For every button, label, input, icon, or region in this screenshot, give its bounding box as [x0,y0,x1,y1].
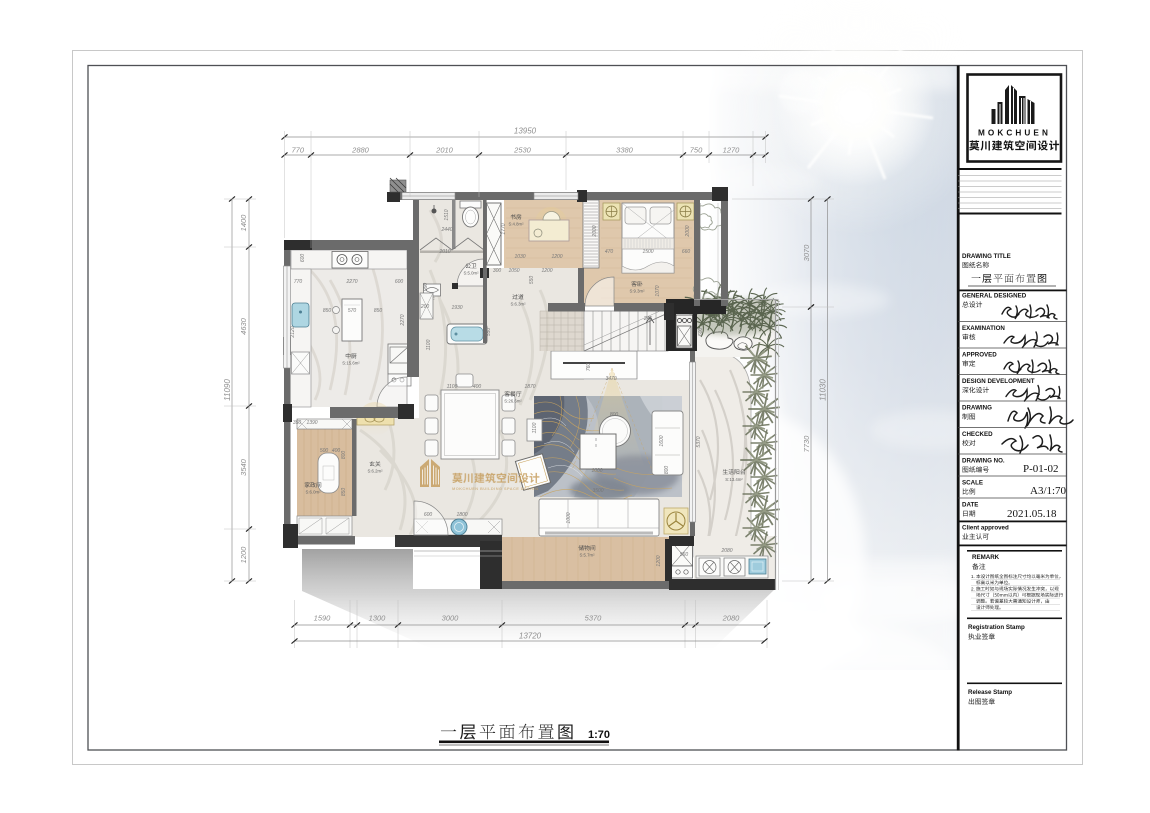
svg-text:S:4.8m²: S:4.8m² [508,222,524,227]
svg-text:S:6.0m²: S:6.0m² [305,490,321,495]
svg-text:S:15.6m²: S:15.6m² [342,361,360,366]
svg-text:600: 600 [300,254,306,263]
svg-text:1770: 1770 [501,223,507,234]
svg-text:1800: 1800 [456,512,467,518]
svg-text:600: 600 [395,279,404,285]
svg-text:S:6.3m²: S:6.3m² [510,302,526,307]
svg-text:S:5.7m²: S:5.7m² [579,553,595,558]
svg-text:600: 600 [424,512,433,518]
svg-text:S:9.3m²: S:9.3m² [629,289,645,294]
svg-text:11090: 11090 [223,379,232,401]
svg-text:1500: 1500 [642,249,653,255]
svg-text:P-01-02: P-01-02 [1023,463,1058,475]
svg-text:1270: 1270 [723,146,741,155]
svg-text:DATE: DATE [962,502,978,509]
svg-text:1070: 1070 [655,285,661,296]
svg-text:2080: 2080 [722,614,741,623]
svg-text:550: 550 [486,328,492,337]
svg-text:850: 850 [374,308,383,314]
svg-text:2120: 2120 [290,326,296,338]
svg-text:Client approved: Client approved [962,525,1009,532]
svg-text:Registration Stamp: Registration Stamp [968,624,1025,631]
svg-text:2440: 2440 [440,227,452,233]
svg-text:2000: 2000 [592,225,598,237]
svg-text:2270: 2270 [400,314,406,326]
svg-text:DRAWING NO.: DRAWING NO. [962,458,1005,465]
svg-text:500: 500 [320,448,329,454]
svg-text:CHECKED: CHECKED [962,431,993,438]
svg-text:1510: 1510 [444,209,450,220]
svg-text:400: 400 [332,448,341,454]
svg-text:DRAWING: DRAWING [962,405,992,412]
svg-text:800: 800 [664,466,670,475]
svg-text:MOKCHUEN: MOKCHUEN [978,129,1051,138]
svg-text:470: 470 [605,249,614,255]
svg-text:3380: 3380 [616,146,634,155]
svg-text:850: 850 [341,488,347,497]
svg-text:2530: 2530 [513,146,532,155]
svg-text:SCALE: SCALE [962,480,983,487]
svg-text:3000: 3000 [442,614,460,623]
svg-text:13950: 13950 [514,127,537,136]
svg-text:2010: 2010 [435,146,454,155]
svg-text:APPROVED: APPROVED [962,352,997,359]
svg-text:1050: 1050 [508,268,519,274]
svg-text:600: 600 [698,328,704,337]
svg-text:1200: 1200 [551,254,562,260]
svg-text:Release Stamp: Release Stamp [968,689,1012,696]
svg-text:2080: 2080 [720,548,732,554]
svg-text:11030: 11030 [818,379,827,401]
svg-text:245: 245 [643,316,653,322]
svg-text:750: 750 [690,146,703,155]
svg-text:S:5.0m²: S:5.0m² [463,271,479,276]
svg-text:1300: 1300 [369,614,387,623]
svg-text:REMARK: REMARK [972,554,1000,561]
svg-text:1390: 1390 [306,420,317,426]
svg-text:S:26.6m²: S:26.6m² [504,399,522,404]
svg-text:1100: 1100 [447,384,458,390]
svg-text:2010: 2010 [438,249,450,255]
svg-text:1100: 1100 [532,422,538,433]
svg-text:550: 550 [529,276,535,285]
svg-text:3070: 3070 [802,244,811,262]
svg-text:DRAWING TITLE: DRAWING TITLE [962,253,1011,260]
svg-text:1200: 1200 [239,546,248,564]
svg-text:3500: 3500 [592,488,603,494]
svg-text:2000: 2000 [685,225,691,237]
svg-text:DESIGN DEVELOPMENT: DESIGN DEVELOPMENT [962,378,1035,385]
svg-text:5370: 5370 [585,614,603,623]
svg-text:350: 350 [293,420,302,426]
svg-text:2270: 2270 [345,279,357,285]
svg-text:800: 800 [341,451,347,460]
svg-text:990: 990 [423,283,429,292]
svg-text:S:6.2m²: S:6.2m² [367,469,383,474]
svg-text:1030: 1030 [514,254,525,260]
svg-text:A3/1:70: A3/1:70 [1030,485,1067,497]
svg-text:1000: 1000 [566,512,572,523]
svg-text:MOKCHUEN BUILDING SPACE DESIGN: MOKCHUEN BUILDING SPACE DESIGN [452,486,539,491]
svg-text:1200: 1200 [656,555,662,566]
svg-text:7730: 7730 [802,435,811,453]
svg-text:EXAMINATION: EXAMINATION [962,325,1005,332]
svg-text:2880: 2880 [351,146,370,155]
svg-text:1000: 1000 [591,468,602,474]
svg-text:850: 850 [323,308,332,314]
svg-text:1:70: 1:70 [588,729,610,741]
svg-text:2021.05.18: 2021.05.18 [1007,508,1057,520]
svg-text:4630: 4630 [239,317,248,335]
svg-text:1100: 1100 [426,339,432,350]
svg-text:800: 800 [610,412,619,418]
svg-text:1590: 1590 [314,614,332,623]
svg-text:13720: 13720 [519,632,542,641]
svg-text:300: 300 [493,268,502,274]
svg-text:1930: 1930 [451,305,462,311]
svg-text:660: 660 [682,249,691,255]
svg-text:3540: 3540 [239,458,248,476]
svg-text:1870: 1870 [524,384,535,390]
svg-text:770: 770 [291,146,304,155]
svg-text:1400: 1400 [239,214,248,232]
svg-text:1600: 1600 [659,435,665,446]
svg-text:3470: 3470 [605,376,616,382]
svg-text:770: 770 [294,279,303,285]
svg-text:2.: 2. [971,586,975,591]
svg-text:400: 400 [473,384,482,390]
svg-text:GENERAL DESIGNED: GENERAL DESIGNED [962,293,1027,300]
svg-text:570: 570 [348,308,357,314]
svg-text:5370: 5370 [696,436,702,447]
svg-text:S:13.4m²: S:13.4m² [725,477,743,482]
svg-text:560: 560 [680,552,689,558]
svg-text:760: 760 [586,363,592,372]
svg-text:200: 200 [420,304,430,310]
svg-text:1200: 1200 [541,268,552,274]
svg-text:1.: 1. [971,574,975,579]
